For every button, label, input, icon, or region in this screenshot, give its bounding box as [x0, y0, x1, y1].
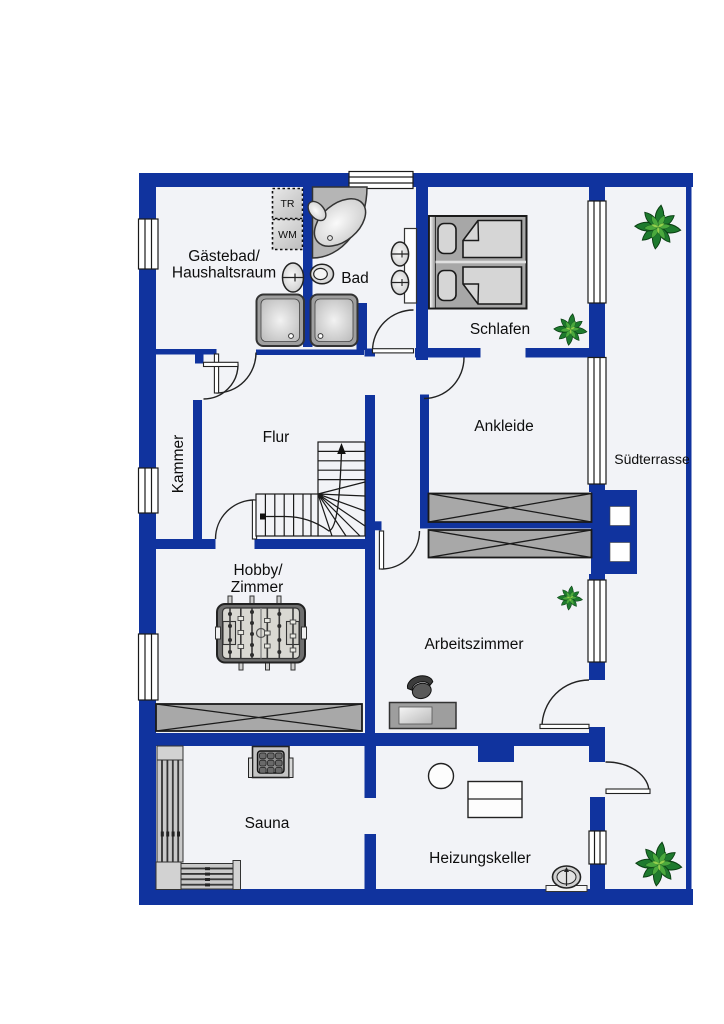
svg-text:WM: WM	[278, 229, 297, 241]
svg-text:Hobby/: Hobby/	[233, 562, 283, 579]
svg-text:Schlafen: Schlafen	[470, 321, 530, 338]
svg-text:Bad: Bad	[341, 270, 369, 287]
svg-text:Gästebad/: Gästebad/	[188, 248, 260, 265]
svg-text:Heizungskeller: Heizungskeller	[429, 850, 531, 867]
svg-text:Arbeitszimmer: Arbeitszimmer	[424, 636, 523, 653]
svg-text:Kammer: Kammer	[170, 435, 187, 494]
svg-text:Zimmer: Zimmer	[231, 579, 284, 596]
svg-text:Südterrasse: Südterrasse	[614, 451, 690, 467]
svg-text:TR: TR	[281, 198, 295, 210]
svg-text:Sauna: Sauna	[245, 815, 290, 832]
svg-text:Flur: Flur	[263, 429, 290, 446]
svg-text:Haushaltsraum: Haushaltsraum	[172, 265, 276, 282]
svg-text:Ankleide: Ankleide	[474, 418, 533, 435]
